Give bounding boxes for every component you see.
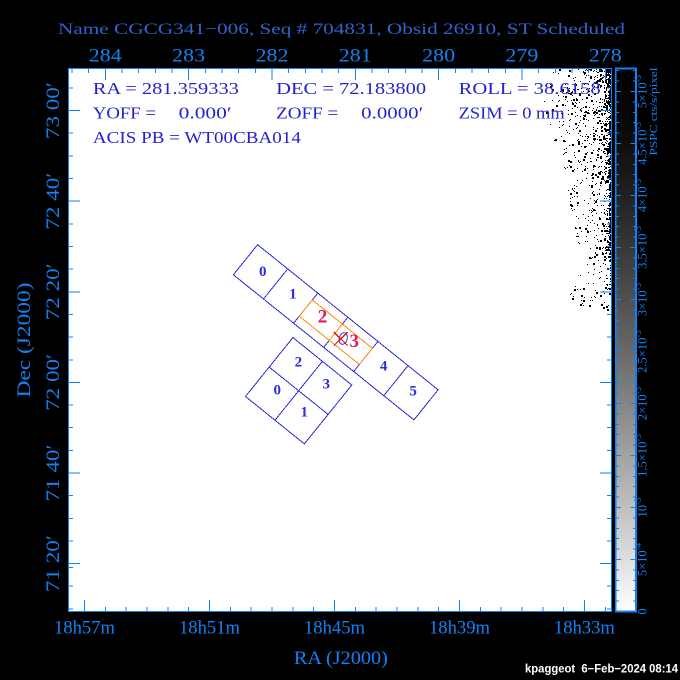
svg-text:Name CGCG341−006, Seq # 704831: Name CGCG341−006, Seq # 704831, Obsid 26… xyxy=(58,21,625,38)
svg-text:3: 3 xyxy=(350,331,360,352)
svg-text:0.0000′: 0.0000′ xyxy=(361,103,423,122)
svg-text:RA (J2000): RA (J2000) xyxy=(294,648,388,669)
svg-text:0: 0 xyxy=(273,383,281,399)
svg-text:18h39m: 18h39m xyxy=(429,618,490,639)
svg-text:72 40′: 72 40′ xyxy=(43,173,64,230)
svg-text:282: 282 xyxy=(256,46,289,67)
svg-text:kpaggeot 6−Feb−2024 08:14: kpaggeot 6−Feb−2024 08:14 xyxy=(525,661,678,675)
svg-text:3: 3 xyxy=(322,377,330,393)
svg-text:18h57m: 18h57m xyxy=(54,618,115,639)
svg-text:72 00′: 72 00′ xyxy=(43,354,64,411)
svg-text:2: 2 xyxy=(318,307,328,328)
svg-text:279: 279 xyxy=(505,46,538,67)
svg-text:4: 4 xyxy=(380,359,388,375)
svg-text:72 20′: 72 20′ xyxy=(43,263,64,320)
svg-text:0.000′: 0.000′ xyxy=(179,103,232,122)
svg-text:ZSIM = 0 mm: ZSIM = 0 mm xyxy=(459,103,565,122)
svg-text:1: 1 xyxy=(289,287,297,303)
svg-text:18h51m: 18h51m xyxy=(179,618,240,639)
svg-text:DEC = 72.183800: DEC = 72.183800 xyxy=(276,79,426,98)
svg-text:ROLL = 38.6158: ROLL = 38.6158 xyxy=(459,79,601,98)
svg-text:71 40′: 71 40′ xyxy=(43,445,64,502)
svg-text:0: 0 xyxy=(636,608,650,614)
svg-text:278: 278 xyxy=(589,46,622,67)
svg-text:281: 281 xyxy=(339,46,372,67)
svg-text:18h45m: 18h45m xyxy=(304,618,365,639)
svg-text:ZOFF =: ZOFF = xyxy=(276,103,338,122)
svg-text:71 20′: 71 20′ xyxy=(43,535,64,592)
svg-text:ACIS PB = WT00CBA014: ACIS PB = WT00CBA014 xyxy=(93,128,302,147)
svg-text:280: 280 xyxy=(422,46,455,67)
svg-text:5: 5 xyxy=(409,384,417,400)
svg-text:Dec (J2000): Dec (J2000) xyxy=(14,283,35,398)
svg-text:PSPC cts/s/pixel: PSPC cts/s/pixel xyxy=(648,68,660,156)
svg-text:RA = 281.359333: RA = 281.359333 xyxy=(93,79,239,98)
svg-text:1: 1 xyxy=(300,405,308,421)
svg-text:YOFF =: YOFF = xyxy=(93,103,156,122)
svg-text:18h33m: 18h33m xyxy=(554,618,615,639)
svg-text:284: 284 xyxy=(89,46,123,67)
svg-text:283: 283 xyxy=(172,46,205,67)
svg-text:2: 2 xyxy=(295,354,303,370)
svg-text:0: 0 xyxy=(259,264,267,280)
svg-text:73 00′: 73 00′ xyxy=(43,82,64,139)
